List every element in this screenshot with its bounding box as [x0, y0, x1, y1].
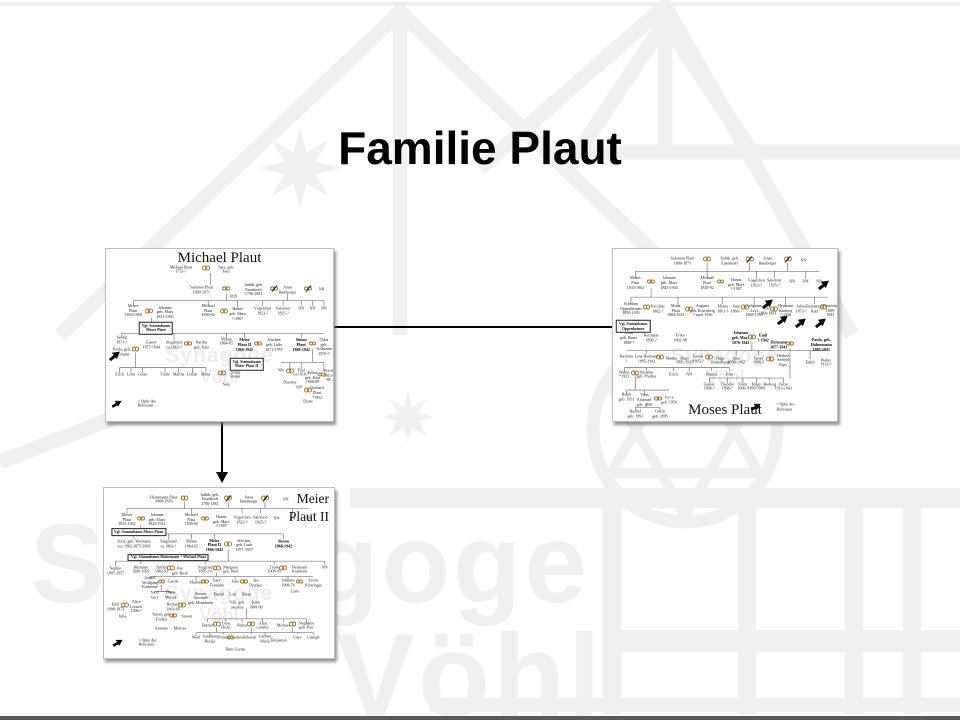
- person-label: Benjamin: [271, 639, 287, 644]
- person-label: Knut 1908-90: [249, 601, 262, 610]
- person-label: Salomon Plaut 1800-1871: [671, 256, 694, 265]
- connector-arrow-shaft: [221, 422, 223, 474]
- person-label: Dorothy: [283, 381, 296, 386]
- person-label: Minna 1864-65: [185, 540, 198, 549]
- person-label: Bianca: [706, 372, 717, 377]
- person-label: Gisela 1895-?: [693, 354, 704, 363]
- person-label: NN: [319, 288, 325, 293]
- divorced-marriage-rings-icon: [784, 257, 792, 262]
- person-label: NN: [310, 307, 316, 312]
- person-label: Johanna 1908-76: [281, 579, 294, 588]
- person-label: Moses Plaut 1833-1902: [118, 513, 135, 527]
- marriage-rings-icon: [647, 279, 655, 284]
- person-label: Clara geb. Sollmann 1876-?: [316, 338, 331, 356]
- tree-title: Meier Plaut II: [289, 490, 329, 525]
- person-label: Gary Faimann: [210, 579, 224, 588]
- person-label: Hanne geb. Marx ?-1907: [229, 307, 245, 321]
- person-label: Herta: [201, 372, 210, 377]
- person-label: Martha: [173, 372, 185, 377]
- marriage-rings-icon: [137, 516, 145, 521]
- marriage-rings-icon: [654, 396, 662, 401]
- reference-box: Vgl. Stammbaum Oppenheimer: [616, 320, 650, 332]
- person-label: Erich: [115, 372, 124, 377]
- person-label: Erika 1892-98: [674, 334, 687, 343]
- person-label: Judith, geb. Eisenkraft: [720, 256, 739, 265]
- person-label: Brian: [242, 593, 251, 598]
- person-label: Lorle: [291, 589, 300, 594]
- tree-title: Michael Plaut: [106, 250, 333, 267]
- person-label: NN: [801, 259, 807, 264]
- person-label: Carmen Merle: [259, 635, 272, 644]
- person-label: Trude: [160, 372, 169, 377]
- meier-plaut-ii-tree-image[interactable]: SynagogeVöhlHeinemann Plaut 1800-1876Jud…: [103, 487, 335, 659]
- person-label: Siegfried 1895-10: [198, 565, 213, 574]
- eight-point-star-icon: [382, 391, 434, 443]
- reference-box: Vgl. Stammbaum Moses Plaut: [139, 322, 173, 334]
- person-label: Minna 1861-?: [717, 305, 728, 314]
- watermark-word-voehl: Vöhl: [336, 610, 604, 720]
- divorced-marriage-rings-icon: [746, 257, 754, 262]
- reference-box: Vgl. Stammbaum Moses Plaut: [111, 528, 166, 536]
- tree-connector-line: [332, 326, 612, 328]
- tree-edges: [106, 249, 333, 421]
- person-label: Vögelchen 1823-?: [233, 516, 250, 525]
- person-label: Lori: [229, 593, 236, 598]
- person-label: Emil ?-1942: [757, 334, 768, 343]
- marriage-rings-icon: [705, 355, 713, 360]
- marriage-rings-icon: [227, 635, 235, 640]
- marriage-rings-icon: [167, 565, 175, 570]
- marriage-rings-icon: [218, 370, 226, 375]
- person-label: Edith: [806, 360, 815, 365]
- person-label: Paula, geb. Hahnemann 1885-1941: [811, 338, 832, 352]
- marriage-rings-icon: [279, 565, 287, 570]
- person-label: Jonas Bamberger: [279, 286, 297, 295]
- person-label: Salomon Plaut 1800-1871: [190, 286, 213, 295]
- person-label: Siegmund ca.1863-?: [160, 540, 176, 549]
- person-label: Walter *1923: [619, 370, 630, 379]
- person-label: Erwin Schwinges: [305, 579, 322, 588]
- person-label: Steven: [181, 615, 192, 620]
- person-label: Lina Hermann 1895-1942: [635, 354, 658, 363]
- person-label: Oscar 1913-1943: [775, 382, 792, 391]
- marriage-rings-icon: [213, 622, 221, 627]
- person-label: Hermann 1898-?: [644, 334, 659, 343]
- person-label: Sam: [223, 383, 230, 388]
- marriage-rings-icon: [766, 357, 774, 362]
- person-label: Auguste geb. Rosenberg ?-nach 1936: [690, 304, 715, 318]
- marriage-rings-icon: [222, 286, 230, 291]
- marriage-rings-icon: [220, 308, 228, 313]
- person-label: Alan Lansley: [256, 621, 269, 630]
- marriage-rings-icon: [121, 603, 129, 608]
- reference-box: Vgl. Stammbaum Heinemann + Michael Plaut: [128, 554, 209, 562]
- divorced-marriage-rings-icon: [261, 496, 269, 501]
- person-label: Sook, geb. Weimann vor 1862-1875/1960: [117, 540, 150, 549]
- person-label: Lotti: [127, 372, 135, 377]
- moses-plaut-tree-image[interactable]: SynagogeVöhlSalomon Plaut 1800-1871Judit…: [612, 248, 838, 422]
- person-label: Ralph geb. 1951: [619, 392, 635, 401]
- person-label: Jettchen, geb. Lude 1871-1957: [236, 539, 253, 553]
- person-label: Hermann Kratheim: [292, 565, 307, 574]
- person-label: NN: [296, 386, 302, 391]
- person-label: Gerald Wolfgang Katherine: [142, 576, 158, 590]
- marriage-rings-icon: [169, 613, 177, 618]
- person-label: Hanne geb. Marx ?-1907: [213, 515, 229, 529]
- marriage-rings-icon: [685, 307, 693, 312]
- person-label: Diane: [303, 400, 313, 405]
- person-label: Leon Hicks: [221, 621, 230, 630]
- person-label: Vögelchen 1823-?: [748, 279, 765, 288]
- person-label: Salomon 1825-?: [276, 306, 290, 315]
- marriage-rings-icon: [643, 305, 651, 310]
- person-label: Susanne geb. Pfeiffer: [637, 370, 657, 379]
- person-label: NN: [321, 307, 327, 312]
- person-label: Melissa: [174, 627, 186, 632]
- person-label: NN: [274, 516, 280, 521]
- marriage-rings-icon: [318, 372, 326, 377]
- divorced-marriage-rings-icon: [224, 496, 232, 501]
- person-label: Steven Gertrude geb. Mondstein: [188, 592, 213, 606]
- person-label: Mona Plaut 1884-1925: [667, 304, 684, 318]
- marriage-rings-icon: [286, 369, 294, 374]
- marriage-rings-icon: [631, 370, 639, 375]
- marriage-rings-icon: [656, 355, 664, 360]
- person-label: Simon Plaut 1868-1942: [293, 338, 310, 352]
- person-label: Moses Plaut 1833-1902: [627, 277, 644, 291]
- person-label: Greta: [138, 372, 147, 377]
- person-label: Irving Renee: [230, 370, 240, 379]
- marriage-rings-icon: [158, 579, 166, 584]
- person-label: Grete 1906-?: [753, 356, 764, 365]
- person-label: NN: [789, 279, 795, 284]
- person-label: Ward: [192, 635, 201, 640]
- person-label: Lothar: [187, 372, 198, 377]
- marriage-rings-icon: [132, 346, 140, 351]
- person-label: Rita: [726, 372, 733, 377]
- person-label: Caleigh: [307, 635, 319, 640]
- person-label: Diane Marcia: [165, 591, 176, 600]
- marriage-rings-icon: [296, 579, 304, 584]
- marriage-rings-icon: [254, 341, 262, 346]
- person-label: Theodor 1898-?: [720, 382, 734, 391]
- person-label: Heinemann Plaut 1800-1876: [150, 495, 178, 504]
- person-label: Erich: [669, 372, 678, 377]
- marriage-rings-icon: [213, 565, 221, 570]
- marriage-rings-icon: [247, 622, 255, 627]
- person-label: Irma 1898-1962: [728, 356, 745, 365]
- person-label: Minna 1864-65: [220, 337, 233, 346]
- person-label: Harriet: [202, 623, 213, 628]
- marriage-rings-icon: [703, 257, 711, 262]
- person-label: Johanna geb. Marx 1831-1903: [156, 306, 173, 320]
- person-label: NN: [803, 279, 809, 284]
- person-label: Carole: [168, 579, 179, 584]
- person-label: Salomon 1825-?: [253, 516, 267, 525]
- person-label: Velma: [237, 623, 247, 628]
- person-label: Seelig 1871-?: [116, 336, 127, 345]
- person-label: Simon 1868-1942: [275, 540, 292, 549]
- person-label: Bertha geb. Katz: [194, 341, 209, 350]
- person-label: Hugo 1891-1917: [676, 356, 693, 365]
- person-label: Johanna geb. Marx 1876-1942: [732, 332, 750, 346]
- marriage-rings-icon: [717, 279, 725, 284]
- person-label: Scholum Oppenheimer 1850-1933: [620, 302, 642, 316]
- marriage-rings-icon: [184, 341, 192, 346]
- person-label: Gustav 1896-?: [704, 382, 715, 391]
- person-label: Margaret geb. Weil: [223, 565, 238, 574]
- person-label: Daniel: [214, 593, 225, 598]
- person-label: Clare: [293, 635, 302, 640]
- person-label: NN: [686, 372, 692, 377]
- person-label: Jettchen geb. Lude 1871-1957: [265, 338, 282, 352]
- presentation-slide: Synagoge Vöhl Familie Plaut SynagogeVöhl…: [0, 0, 960, 720]
- person-label: Julia: [119, 615, 127, 620]
- person-label: Sara 1866-?: [731, 305, 742, 314]
- person-label: Meier Plaut II 1866-1942: [206, 539, 223, 553]
- marriage-rings-icon: [178, 603, 186, 608]
- person-label: Vali, geb. Jacobus: [230, 601, 245, 610]
- person-label: 1829: [229, 295, 237, 300]
- reference-box: Vgl. Stammbaum Meier Plaut II: [229, 358, 263, 370]
- person-label: NN: [298, 307, 304, 312]
- person-label: Michael Plaut 1830-92: [700, 277, 713, 291]
- michael-plaut-tree-image[interactable]: SynagogeVöhlMichael Plaut 1753-?Sara, ge…: [105, 248, 334, 422]
- marriage-rings-icon: [741, 305, 749, 310]
- marriage-rings-icon: [224, 542, 232, 547]
- person-label: Scott Gary: [150, 591, 158, 600]
- person-label: Susan, geb. Fridkis: [152, 613, 170, 622]
- person-label: Michael Plaut 1839-92: [185, 513, 198, 527]
- person-label: Hermann 1877-1941: [770, 341, 787, 350]
- marriage-rings-icon: [201, 516, 209, 521]
- person-label: Jean: [232, 579, 239, 584]
- person-label: Sophie 1897-1957: [107, 567, 124, 576]
- marriage-rings-icon: [201, 579, 209, 584]
- person-label: Jan Drucker: [249, 579, 262, 588]
- person-label: Sarah: [247, 635, 256, 640]
- legend-label: = Opfer des Holocaust: [138, 399, 156, 408]
- person-label: Annalee: [155, 627, 168, 632]
- marriage-rings-icon: [786, 341, 794, 346]
- marriage-rings-icon: [181, 496, 189, 501]
- person-label: NN: [322, 566, 328, 571]
- person-label: Gustav 1877-1944: [143, 341, 160, 350]
- person-label: Walter 1913-?: [820, 358, 831, 367]
- slide-bottom-edge: [0, 716, 960, 720]
- person-label: NN: [283, 498, 289, 503]
- person-label: Hans Gretta: [225, 647, 244, 652]
- marriage-rings-icon: [770, 307, 778, 312]
- person-label: Stephanie geb. Parr: [299, 621, 315, 630]
- person-label: Johanna geb. Marx 1843-1914: [148, 513, 165, 527]
- divorced-marriage-rings-icon: [304, 286, 312, 291]
- person-label: Hugo 1899-1900: [748, 382, 765, 391]
- person-label: Gitta geb. Bante 1890-?: [620, 332, 637, 346]
- person-label: Michael Plaut 1830-92: [201, 304, 214, 318]
- person-label: Vögelchen 1823-?: [254, 306, 271, 315]
- connector-arrowhead-icon: [216, 472, 228, 483]
- person-label: Jonathan Recija: [203, 635, 217, 644]
- person-label: Judith, geb. Eisenkraft 1796-1881: [244, 283, 263, 297]
- marriage-rings-icon: [820, 305, 828, 310]
- person-label: Hermine 1900-1992: [132, 565, 149, 574]
- person-label: Jonas Bamberger: [759, 256, 777, 265]
- marriage-rings-icon: [289, 622, 297, 627]
- tree-title: Moses Plaut: [613, 402, 837, 419]
- person-label: Siegmund ca.1863-?: [166, 341, 182, 350]
- person-label: Alice Lorsow 1906-?: [130, 600, 142, 614]
- marriage-rings-icon: [748, 334, 756, 339]
- person-label: Jonas Bamberger: [240, 495, 258, 504]
- divorced-marriage-rings-icon: [270, 286, 278, 291]
- person-label: Judith, geb. Eisenkraft 1796-1881: [201, 493, 220, 507]
- person-label: Herbert Seefeld Espy: [777, 354, 789, 368]
- marriage-rings-icon: [309, 341, 317, 346]
- marriage-rings-icon: [145, 308, 153, 313]
- person-label: Karoline 1862-?: [651, 305, 665, 314]
- person-label: Meier Plaut II 1866-1942: [236, 338, 253, 352]
- person-label: Bachem ?: [620, 354, 633, 363]
- slide-title: Familie Plaut: [0, 121, 960, 175]
- marriage-rings-icon: [304, 388, 312, 393]
- person-label: Johanna geb. Marx 1843-1904: [660, 277, 677, 291]
- person-label: NN: [278, 369, 284, 374]
- legend-label: = Opfer des Holocaust: [139, 638, 157, 647]
- person-label: Salomon 1825-?: [767, 279, 781, 288]
- person-label: Hanna geb. Marx ?-1907: [728, 278, 744, 292]
- marriage-rings-icon: [240, 579, 248, 584]
- tree-connector-arrow: [216, 422, 228, 484]
- person-label: Moses Plaut 1833-1902: [125, 304, 142, 318]
